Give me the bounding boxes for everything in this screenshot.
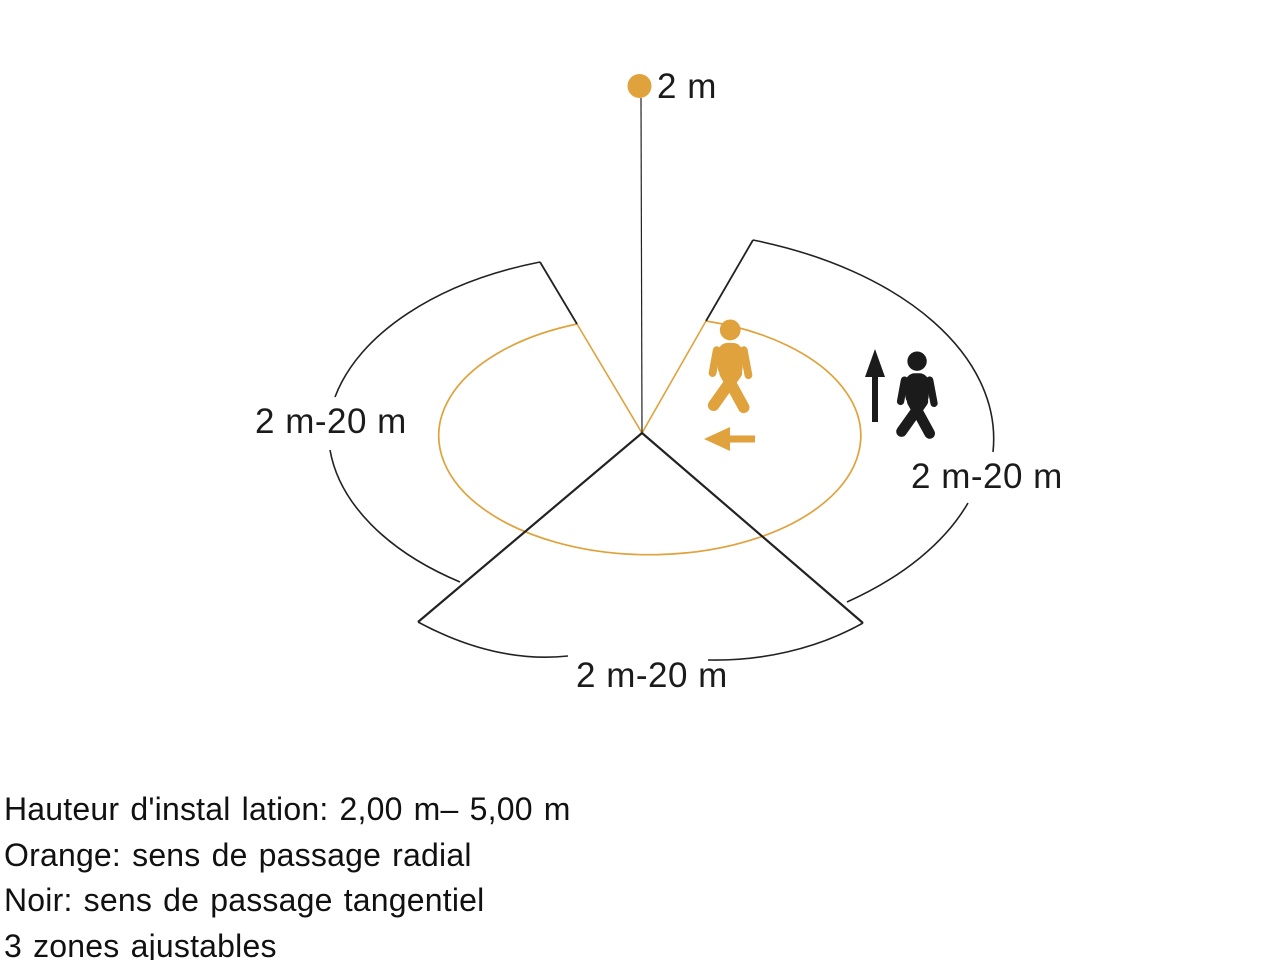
arrow-left-icon (704, 427, 755, 451)
zone-bottom (418, 433, 863, 660)
legend-line-installation-height: Hauteur d'instal lation: 2,00 m– 5,00 m (4, 787, 571, 833)
zone-right-label: 2 m-20 m (911, 457, 1063, 496)
mount-height-label: 2 m (657, 67, 717, 106)
legend-block: Hauteur d'instal lation: 2,00 m– 5,00 m … (4, 787, 571, 960)
zone-right (706, 240, 994, 602)
arrow-up-icon (865, 349, 885, 422)
legend-line-black-tangential: Noir: sens de passage tangentiel (4, 878, 571, 924)
sensor-dot-icon (628, 74, 652, 98)
person-radial-icon (713, 320, 749, 408)
detection-zones-diagram: 2 m 2 m-20 m 2 m-20 m 2 m-20 m (0, 0, 1280, 770)
sensor-zone-diagram-page: 2 m 2 m-20 m 2 m-20 m 2 m-20 m Hauteur d… (0, 0, 1280, 960)
person-tangential-icon (901, 351, 934, 433)
zone-left-label: 2 m-20 m (255, 402, 407, 441)
zone-bottom-label: 2 m-20 m (576, 656, 728, 695)
detection-ellipse (439, 321, 861, 555)
mount-drop-line (641, 98, 642, 433)
legend-line-adjustable-zones: 3 zones ajustables (4, 924, 571, 960)
legend-line-orange-radial: Orange: sens de passage radial (4, 833, 571, 879)
